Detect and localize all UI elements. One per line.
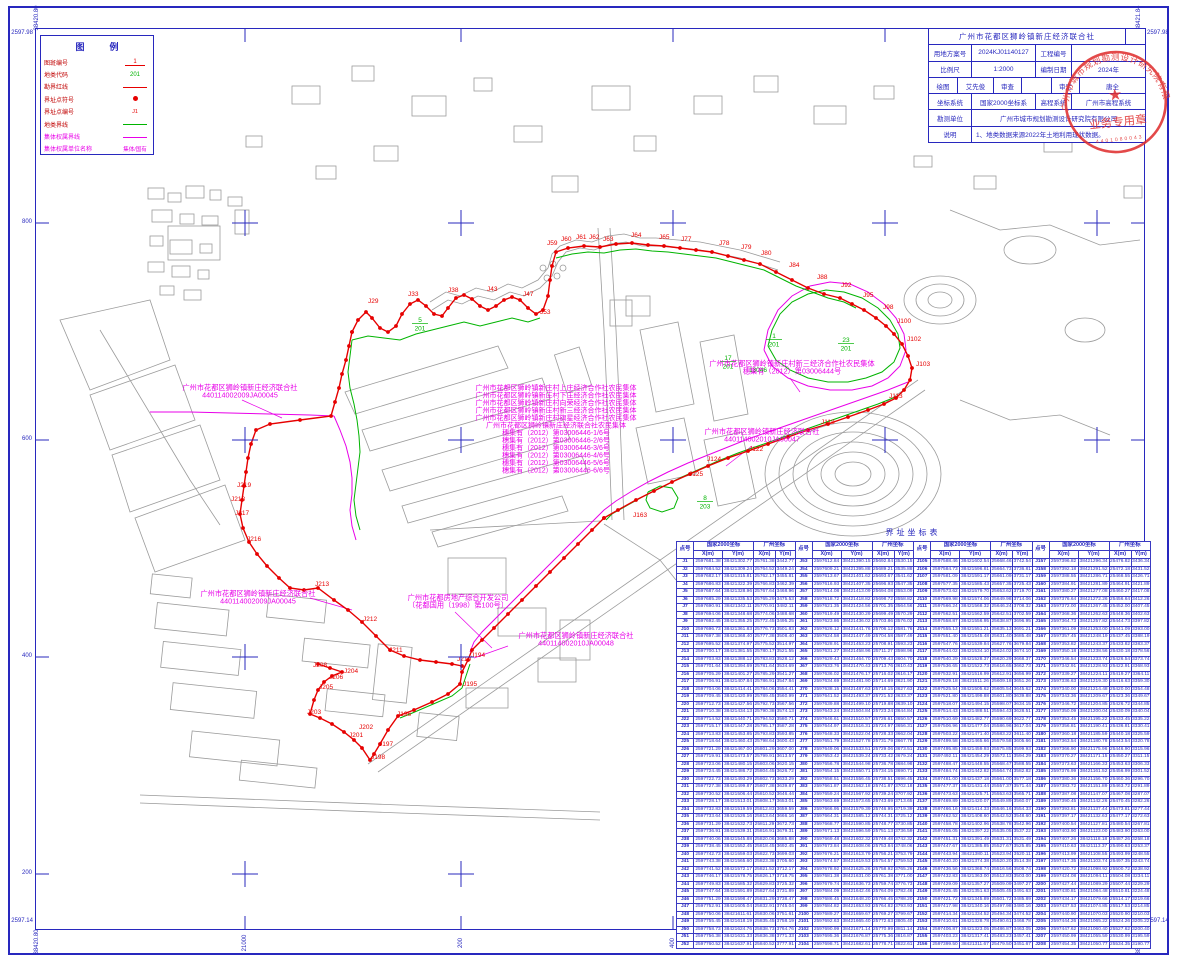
point-id-cell: J142 xyxy=(914,836,931,844)
col-header-axis: Y(m) xyxy=(723,550,754,559)
coordinate-cell: 3600.43 xyxy=(776,739,796,747)
coordinate-cell: 25829.83 xyxy=(754,881,776,889)
coordinate-cell: 3758.19 xyxy=(776,919,796,927)
table-row: J292597724.4538421486.7225804.453626.72J… xyxy=(677,769,1151,777)
corner-coordinate-label: 2597.14 xyxy=(6,918,33,924)
legend-item-sample: 1 xyxy=(125,59,145,66)
coordinate-cell: 25777.38 xyxy=(754,634,776,642)
coordinate-cell: 2597679.74 xyxy=(812,881,841,889)
col-header-axis: X(m) xyxy=(1049,550,1078,559)
boundary-point-dot xyxy=(646,243,650,247)
boundary-point-label: J124 xyxy=(707,456,721,463)
boundary-point-dot xyxy=(694,248,698,252)
coordinate-cell: 38421311.67 xyxy=(960,941,991,949)
coordinate-cell: 2597689.27 xyxy=(812,911,841,919)
coordinate-cell: 2597458.78 xyxy=(931,821,960,829)
coordinate-cell: 25696.93 xyxy=(872,581,894,589)
coordinate-cell: 25713.76 xyxy=(872,664,894,672)
point-id-cell: J180 xyxy=(1032,731,1049,739)
point-id-cell: J36 xyxy=(677,821,694,829)
coordinate-cell: 3667.78 xyxy=(894,739,914,747)
coordinate-cell: 2597360.18 xyxy=(1049,731,1078,739)
coordinate-cell: 2597451.31 xyxy=(931,836,960,844)
point-id-cell: J34 xyxy=(677,806,694,814)
coordinate-cell: 38421328.96 xyxy=(723,589,754,597)
coordinate-cell: 38421050.77 xyxy=(1078,941,1109,949)
coordinate-cell: 2597336.63 xyxy=(1049,679,1078,687)
coordinate-cell: 38421418.82 xyxy=(841,596,872,604)
coordinate-cell: 3475.53 xyxy=(776,596,796,604)
point-id-cell: J84 xyxy=(795,791,812,799)
coordinate-cell: 38421098.92 xyxy=(1078,866,1109,874)
col-header-axis: X(m) xyxy=(812,550,841,559)
check-value xyxy=(1021,78,1051,93)
point-id-cell: J48 xyxy=(677,911,694,919)
coordinate-cell: 3811.14 xyxy=(894,926,914,934)
coordinate-cell: 38421118.18 xyxy=(1078,836,1109,844)
point-id-cell: J99 xyxy=(795,904,812,912)
table-row: J332597728.1738421513.0125808.173653.01J… xyxy=(677,799,1151,807)
point-id-cell: J80 xyxy=(795,761,812,769)
boundary-point-dot xyxy=(432,312,436,316)
coordinate-cell: 25775.36 xyxy=(872,934,894,942)
coordinate-cell: 25504.08 xyxy=(1109,874,1131,882)
legend-item: 地类界线 xyxy=(41,118,153,130)
coordinate-cell: 3205.22 xyxy=(1131,919,1151,927)
elev-sys-value: 广州市高程系统 xyxy=(1071,94,1145,109)
coordinate-cell: 2597644.97 xyxy=(812,724,841,732)
coordinate-cell: 3315.96 xyxy=(1131,746,1151,754)
boundary-point-dot xyxy=(480,638,484,642)
coordinate-cell: 25527.67 xyxy=(991,844,1013,852)
coordinate-cell: 25523.94 xyxy=(991,851,1013,859)
coordinate-cell: 38421401.62 xyxy=(841,574,872,582)
table-row: J522597760.5238421637.9125840.523777.91J… xyxy=(677,941,1151,949)
coordinate-cell: 38421374.97 xyxy=(723,641,754,649)
point-id-cell: J119 xyxy=(914,664,931,672)
coordinate-cell: 25557.37 xyxy=(991,784,1013,792)
boundary-point-label: J61 xyxy=(576,234,587,241)
boundary-point-dot xyxy=(550,264,554,268)
point-id-cell: J79 xyxy=(795,754,812,762)
boundary-point-dot xyxy=(616,508,620,512)
legend-item-sample: J1 xyxy=(120,109,150,115)
coordinate-cell: 2597510.69 xyxy=(931,716,960,724)
point-id-cell: J159 xyxy=(1032,574,1049,582)
coordinate-cell: 2597756.38 xyxy=(694,934,723,942)
coordinate-cell: 3296.70 xyxy=(1131,776,1151,784)
coordinate-cell: 38421084.48 xyxy=(1078,889,1109,897)
coordinate-cell: 3587.49 xyxy=(894,634,914,642)
coordinate-cell: 38421296.34 xyxy=(1078,559,1109,567)
project-no-value xyxy=(1071,45,1145,60)
coordinate-cell: 38421510.57 xyxy=(841,716,872,724)
table-row: J262597721.2938421467.0025801.293607.00J… xyxy=(677,746,1151,754)
coordinate-cell: 3238.92 xyxy=(1131,866,1151,874)
coordinate-cell: 25433.82 xyxy=(1109,641,1131,649)
coordinate-cell: 25783.83 xyxy=(754,656,776,664)
coordinate-cell: 38421573.65 xyxy=(841,799,872,807)
point-id-cell: J192 xyxy=(1032,821,1049,829)
coordinate-cell: 38421562.59 xyxy=(960,611,991,619)
point-id-cell: J64 xyxy=(795,641,812,649)
coordinate-cell: 3402.63 xyxy=(1131,611,1151,619)
coordinate-cell: 38421065.22 xyxy=(1078,919,1109,927)
coordinate-cell: 2597687.64 xyxy=(694,589,723,597)
boundary-point-dot xyxy=(430,700,434,704)
coordinate-cell: 25653.62 xyxy=(991,589,1013,597)
coordinate-cell: 38421539.31 xyxy=(723,829,754,837)
boundary-point-dot xyxy=(546,294,550,298)
note-value: 1、地类数据来源2022年土地利用现状数据。 xyxy=(971,127,1145,142)
table-row: J62597685.2938421335.5325765.293475.53J5… xyxy=(677,596,1151,604)
coordinate-cell: 25530.99 xyxy=(1109,934,1131,942)
coordinate-cell: 25733.42 xyxy=(872,754,894,762)
coordinate-cell: 38421585.43 xyxy=(960,581,991,589)
coordinate-cell: 38421596.59 xyxy=(841,829,872,837)
table-row: J282597723.0638421480.1525803.063620.15J… xyxy=(677,761,1151,769)
coordinate-cell: 25753.84 xyxy=(872,844,894,852)
coordinate-cell: 38421477.04 xyxy=(960,724,991,732)
coordinate-cell: 25810.52 xyxy=(754,791,776,799)
coordinate-cell: 25422.91 xyxy=(1109,664,1131,672)
grid-tick-label-left: 800 xyxy=(6,219,32,225)
table-row: J72597690.9138421342.1125770.913482.11J5… xyxy=(677,604,1151,612)
coordinate-cell: 25500.72 xyxy=(1109,866,1131,874)
col-header-axis: Y(m) xyxy=(960,550,991,559)
coordinate-cell: 25812.83 xyxy=(754,806,776,814)
coordinate-cell: 3388.19 xyxy=(1131,634,1151,642)
coordinate-cell: 38421459.93 xyxy=(960,746,991,754)
coordinate-cell: 38421598.47 xyxy=(723,896,754,904)
col-group-guangzhou: 广州坐标 xyxy=(872,542,914,551)
coordinate-cell: 2597633.76 xyxy=(812,664,841,672)
coordinate-cell: 38421447.49 xyxy=(841,634,872,642)
boundary-point-label: J62 xyxy=(589,234,600,241)
point-id-cell: J191 xyxy=(1032,814,1049,822)
coordinate-cell: 25446.90 xyxy=(1109,746,1131,754)
boundary-point-label: J195 xyxy=(463,681,477,688)
coordinate-cell: 2597639.88 xyxy=(812,701,841,709)
coordinate-cell: 25490.63 xyxy=(1109,844,1131,852)
coordinate-cell: 2597388.55 xyxy=(1049,574,1078,582)
legend-item-label: 界址点符号 xyxy=(44,95,120,104)
coordinate-cell: 2597410.61 xyxy=(931,919,960,927)
coordinate-cell: 2597705.29 xyxy=(694,671,723,679)
coordinate-cell: 38421070.03 xyxy=(1078,911,1109,919)
coordinate-cell: 38421532.73 xyxy=(723,821,754,829)
point-id-cell: J144 xyxy=(914,851,931,859)
point-id-cell: J89 xyxy=(795,829,812,837)
coordinate-cell: 3436.34 xyxy=(1131,559,1151,567)
coordinate-cell: 25711.27 xyxy=(872,649,894,657)
coordinate-cell: 25708.91 xyxy=(872,641,894,649)
point-id-cell: J92 xyxy=(795,851,812,859)
coordinate-cell: 38421618.19 xyxy=(723,919,754,927)
coordinate-cell: 3311.15 xyxy=(1131,754,1151,762)
coordinate-cell: 3457.41 xyxy=(1013,934,1033,942)
coordinate-cell: 2597661.87 xyxy=(812,784,841,792)
coordinate-cell: 3690.71 xyxy=(894,769,914,777)
coordinate-cell: 3258.18 xyxy=(1131,836,1151,844)
coordinate-cell: 25594.43 xyxy=(991,709,1013,717)
boundary-point-dot xyxy=(340,372,344,376)
coordinate-cell: 3359.30 xyxy=(1131,679,1151,687)
coordinate-cell: 38421505.62 xyxy=(960,686,991,694)
coordinate-cell: 38421219.30 xyxy=(1078,679,1109,687)
coordinate-cell: 2597724.45 xyxy=(694,769,723,777)
legend-item-label: 地类代码 xyxy=(44,70,120,79)
coordinate-cell: 25668.46 xyxy=(991,559,1013,567)
coordinate-cell: 3229.29 xyxy=(1131,881,1151,889)
coordinate-cell: 2597437.53 xyxy=(1049,904,1078,912)
coordinate-cell: 3738.47 xyxy=(776,896,796,904)
coordinate-cell: 25514.17 xyxy=(1109,896,1131,904)
point-id-cell: J134 xyxy=(914,776,931,784)
coordinate-cell: 25493.99 xyxy=(1109,851,1131,859)
coordinate-cell: 3656.31 xyxy=(894,724,914,732)
boundary-point-dot xyxy=(337,386,341,390)
coordinate-cell: 3673.51 xyxy=(894,746,914,754)
point-id-cell: J7 xyxy=(677,604,694,612)
coordinate-cell: 3501.83 xyxy=(776,626,796,634)
coordinate-cell: 38421494.15 xyxy=(960,701,991,709)
coordinate-cell: 38421539.24 xyxy=(841,754,872,762)
boundary-point-label: J63 xyxy=(603,236,614,243)
point-id-cell: J26 xyxy=(677,746,694,754)
coordinate-cell: 3644.84 xyxy=(894,709,914,717)
coordinate-cell: 38421381.55 xyxy=(723,649,754,657)
coordinate-cell: 2597425.45 xyxy=(931,889,960,897)
point-id-cell: J58 xyxy=(795,596,812,604)
coordinate-cell: 25827.64 xyxy=(754,889,776,897)
coordinate-cell: 38421602.54 xyxy=(960,559,991,567)
point-id-cell: J9 xyxy=(677,619,694,627)
boundary-point-dot xyxy=(652,489,656,493)
coordinate-cell: 3542.96 xyxy=(1013,821,1033,829)
coordinate-cell: 3462.39 xyxy=(776,581,796,589)
coordinate-cell: 3764.76 xyxy=(776,926,796,934)
coordinate-cell: 38421420.07 xyxy=(960,799,991,807)
ownership-annotation: 广州市花都区狮岭镇新庄村新三经济合作社农民集体穗集有（2012）第0300644… xyxy=(709,359,874,376)
coordinate-cell: 3713.65 xyxy=(894,799,914,807)
point-id-cell: J61 xyxy=(795,619,812,627)
coordinate-cell: 25501.72 xyxy=(991,896,1013,904)
boundary-point-dot xyxy=(402,654,406,658)
coordinate-cell: 25698.72 xyxy=(872,596,894,604)
point-id-cell: J123 xyxy=(914,694,931,702)
coordinate-cell: 2597417.35 xyxy=(1049,859,1078,867)
table-row: J392597738.4538421552.4525818.453692.45J… xyxy=(677,844,1151,852)
coordinate-cell: 3672.73 xyxy=(776,821,796,829)
boundary-point-dot xyxy=(246,456,250,460)
table-row: J382597740.0638421545.8825820.063685.88J… xyxy=(677,836,1151,844)
coordinate-cell: 2597397.17 xyxy=(1049,814,1078,822)
coordinate-cell: 38421585.32 xyxy=(723,881,754,889)
coordinate-cell: 25838.73 xyxy=(754,926,776,934)
coordinate-cell: 38421460.43 xyxy=(723,739,754,747)
boundary-point-dot xyxy=(906,354,910,358)
point-id-cell: J124 xyxy=(914,701,931,709)
coordinate-cell: 3287.07 xyxy=(1131,791,1151,799)
coordinate-cell: 25512.83 xyxy=(991,874,1013,882)
point-id-cell: J37 xyxy=(677,829,694,837)
col-header-axis: X(m) xyxy=(991,550,1013,559)
coordinate-table: 点号国家2000坐标广州坐标点号国家2000坐标广州坐标点号国家2000坐标广州… xyxy=(676,541,1151,949)
coordinate-cell: 25561.00 xyxy=(991,776,1013,784)
point-id-cell: J68 xyxy=(795,671,812,679)
corner-coordinate-label: 2597.98 xyxy=(6,30,33,36)
coordinate-cell: 38421322.39 xyxy=(723,581,754,589)
coordinate-cell: 38421528.37 xyxy=(960,656,991,664)
coordinate-cell: 38421441.76 xyxy=(841,626,872,634)
coordinate-cell: 38421257.82 xyxy=(1078,619,1109,627)
coordinate-cell: 38421470.43 xyxy=(841,664,872,672)
coordinate-cell: 2597656.78 xyxy=(812,761,841,769)
point-id-cell: J23 xyxy=(677,724,694,732)
coordinate-cell: 38421224.11 xyxy=(1078,671,1109,679)
coordinate-cell: 25792.73 xyxy=(754,701,776,709)
coordinate-cell: 25448.36 xyxy=(1109,611,1131,619)
coordinate-cell: 25693.67 xyxy=(872,574,894,582)
coordinate-cell: 2597481.00 xyxy=(931,776,960,784)
point-id-cell: J50 xyxy=(677,926,694,934)
coordinate-cell: 2597628.91 xyxy=(812,641,841,649)
coordinate-cell: 2597581.09 xyxy=(931,574,960,582)
coordinate-cell: 3771.00 xyxy=(894,874,914,882)
boundary-point-label: J29 xyxy=(368,298,379,305)
coordinate-cell: 2597447.62 xyxy=(1049,926,1078,934)
coordinate-cell: 25440.18 xyxy=(1109,731,1131,739)
coordinate-cell: 25694.08 xyxy=(872,589,894,597)
coordinate-cell: 38421653.93 xyxy=(841,904,872,912)
coordinate-cell: 3421.89 xyxy=(1131,581,1151,589)
point-id-cell: J83 xyxy=(795,784,812,792)
point-id-cell: J3 xyxy=(677,574,694,582)
coordinate-cell: 38421171.15 xyxy=(1078,754,1109,762)
coordinate-cell: 38421060.40 xyxy=(1078,926,1109,934)
legend-item-label: 地类界线 xyxy=(44,120,120,129)
coordinate-cell: 38421465.66 xyxy=(960,739,991,747)
coordinate-cell: 25762.17 xyxy=(754,574,776,582)
coordinate-cell: 25486.87 xyxy=(991,926,1013,934)
point-id-cell: J6 xyxy=(677,596,694,604)
coordinate-cell: 3645.62 xyxy=(1013,686,1033,694)
point-id-cell: J56 xyxy=(795,581,812,589)
boundary-point-dot xyxy=(554,250,558,254)
coordinate-cell: 3335.22 xyxy=(1131,716,1151,724)
point-id-cell: J77 xyxy=(795,739,812,747)
coordinate-cell: 25419.27 xyxy=(1109,671,1131,679)
point-id-cell: J197 xyxy=(1032,859,1049,867)
coordinate-cell: 25736.78 xyxy=(872,761,894,769)
boundary-point-label: J100 xyxy=(897,318,911,325)
coordinate-cell: 2597443.94 xyxy=(931,851,960,859)
point-id-cell: J125 xyxy=(914,709,931,717)
boundary-point-dot xyxy=(726,456,730,460)
coordinate-cell: 38421424.56 xyxy=(841,604,872,612)
coordinate-cell: 2597736.91 xyxy=(694,829,723,837)
coordinate-cell: 2597710.38 xyxy=(694,709,723,717)
boundary-point-dot xyxy=(866,408,870,412)
coordinate-cell: 2597361.09 xyxy=(1049,626,1078,634)
table-row: J162597705.2938421401.2725785.293541.27J… xyxy=(677,671,1151,679)
coordinate-cell: 2597609.21 xyxy=(812,566,841,574)
point-id-cell: J167 xyxy=(1032,634,1049,642)
coordinate-cell: 38421204.85 xyxy=(1078,701,1109,709)
coordinate-cell: 25572.11 xyxy=(991,754,1013,762)
coordinate-cell: 2597403.23 xyxy=(931,934,960,942)
point-id-cell: J93 xyxy=(795,859,812,867)
coordinate-cell: 2597614.08 xyxy=(812,589,841,597)
coordinate-cell: 2597654.15 xyxy=(812,769,841,777)
coordinate-cell: 3674.10 xyxy=(1013,649,1033,657)
coordinate-cell: 2597676.21 xyxy=(812,851,841,859)
coordinate-cell: 25483.90 xyxy=(1109,829,1131,837)
coordinate-cell: 25772.45 xyxy=(754,619,776,627)
coordinate-cell: 38421619.53 xyxy=(841,859,872,867)
coordinate-cell: 38421243.37 xyxy=(1078,641,1109,649)
coordinate-cell: 3719.70 xyxy=(1013,589,1033,597)
point-id-cell: J102 xyxy=(795,926,812,934)
coordinate-cell: 38421671.14 xyxy=(841,926,872,934)
boundary-point-label: J197 xyxy=(379,741,393,748)
coordinate-cell: 25598.07 xyxy=(991,701,1013,709)
coordinate-cell: 3611.40 xyxy=(1013,731,1033,739)
coordinate-cell: 2597706.91 xyxy=(694,679,723,687)
approve-label: 审定 xyxy=(1051,78,1079,93)
point-id-cell: J16 xyxy=(677,671,694,679)
coordinate-cell: 38421568.32 xyxy=(960,604,991,612)
coordinate-cell: 2597666.95 xyxy=(812,806,841,814)
legend-item-sample xyxy=(120,84,150,90)
coordinate-cell: 25472.18 xyxy=(1109,566,1131,574)
point-id-cell: J29 xyxy=(677,769,694,777)
coordinate-cell: 25830.06 xyxy=(754,911,776,919)
point-id-cell: J88 xyxy=(795,821,812,829)
coordinate-cell: 38421277.08 xyxy=(1078,589,1109,597)
point-id-cell: J17 xyxy=(677,679,694,687)
point-id-cell: J181 xyxy=(1032,739,1049,747)
boundary-point-label: J95 xyxy=(863,292,874,299)
coordinate-cell: 25718.15 xyxy=(872,686,894,694)
coordinate-cell: 2597407.26 xyxy=(1049,836,1078,844)
coordinate-cell: 25794.52 xyxy=(754,716,776,724)
coordinate-cell: 3553.09 xyxy=(894,589,914,597)
coordinate-table-title: 界址坐标表 xyxy=(676,527,1150,538)
coordinate-cell: 2597566.24 xyxy=(931,604,960,612)
coordinate-cell: 25477.17 xyxy=(1109,814,1131,822)
point-id-cell: J51 xyxy=(677,934,694,942)
boundary-point-dot xyxy=(678,246,682,250)
coordinate-cell: 38421055.59 xyxy=(1078,934,1109,942)
coordinate-cell: 38421624.76 xyxy=(723,926,754,934)
coordinate-cell: 2597671.13 xyxy=(812,829,841,837)
coordinate-cell: 3482.11 xyxy=(776,604,796,612)
point-id-cell: J186 xyxy=(1032,776,1049,784)
coordinate-cell: 2597684.09 xyxy=(812,889,841,897)
coordinate-cell: 3200.40 xyxy=(1131,926,1151,934)
coordinate-cell: 3745.04 xyxy=(776,904,796,912)
coordinate-cell: 2597403.90 xyxy=(1049,829,1078,837)
coordinate-cell: 38421504.84 xyxy=(841,709,872,717)
point-id-cell: J81 xyxy=(795,769,812,777)
point-id-cell: J21 xyxy=(677,709,694,717)
col-group-guangzhou: 广州坐标 xyxy=(991,542,1033,551)
point-id-cell: J67 xyxy=(795,664,812,672)
coordinate-cell: 3210.03 xyxy=(1131,911,1151,919)
coordinate-cell: 3714.06 xyxy=(1013,596,1033,604)
